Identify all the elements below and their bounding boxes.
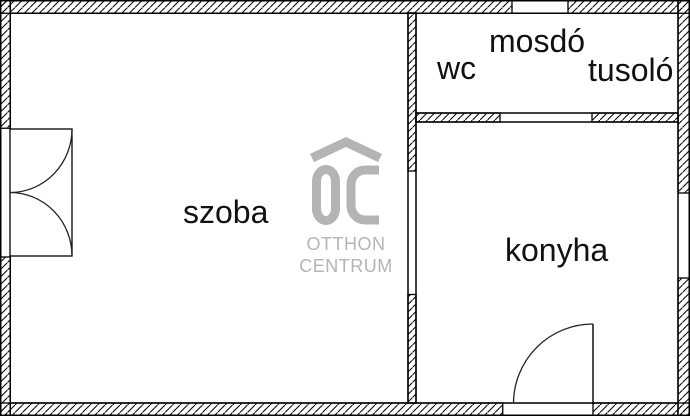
room-label-tusolo: tusoló <box>588 54 673 86</box>
wall-segment <box>592 113 678 122</box>
wall-segment <box>1 1 512 14</box>
wall-segment <box>593 403 689 415</box>
wall-segment <box>568 1 689 14</box>
logo-text-otthon: OTTHON <box>246 235 446 253</box>
roof-chevron-icon <box>312 142 380 158</box>
room-label-konyha: konyha <box>505 234 608 266</box>
monogram-letter-o <box>317 170 336 221</box>
wall-segment <box>408 13 416 171</box>
door-swing-arc <box>514 324 594 404</box>
wall-segment <box>408 295 416 404</box>
wall-bands <box>1 1 690 416</box>
wall-segment <box>1 403 503 415</box>
room-label-wc: wc <box>437 52 476 84</box>
otthon-centrum-logo <box>312 142 380 221</box>
wall-segment <box>678 278 689 415</box>
room-label-mosdo: mosdó <box>489 25 585 57</box>
room-label-szoba: szoba <box>183 196 268 228</box>
oc-monogram-icon <box>317 170 380 221</box>
monogram-letter-c <box>351 170 379 220</box>
logo-text-centrum: CENTRUM <box>246 257 446 275</box>
floorplan: szoba wc mosdó tusoló konyha OTTHON CENT… <box>0 0 690 416</box>
wall-segment <box>1 257 11 415</box>
wall-segment <box>416 113 500 122</box>
wall-segment <box>1 1 11 129</box>
floorplan-canvas <box>0 0 690 416</box>
door-symbol-konyha <box>514 324 594 404</box>
wall-hatch-segments <box>1 1 690 416</box>
double-door-symbol <box>10 129 72 256</box>
wall-segment <box>678 1 689 193</box>
